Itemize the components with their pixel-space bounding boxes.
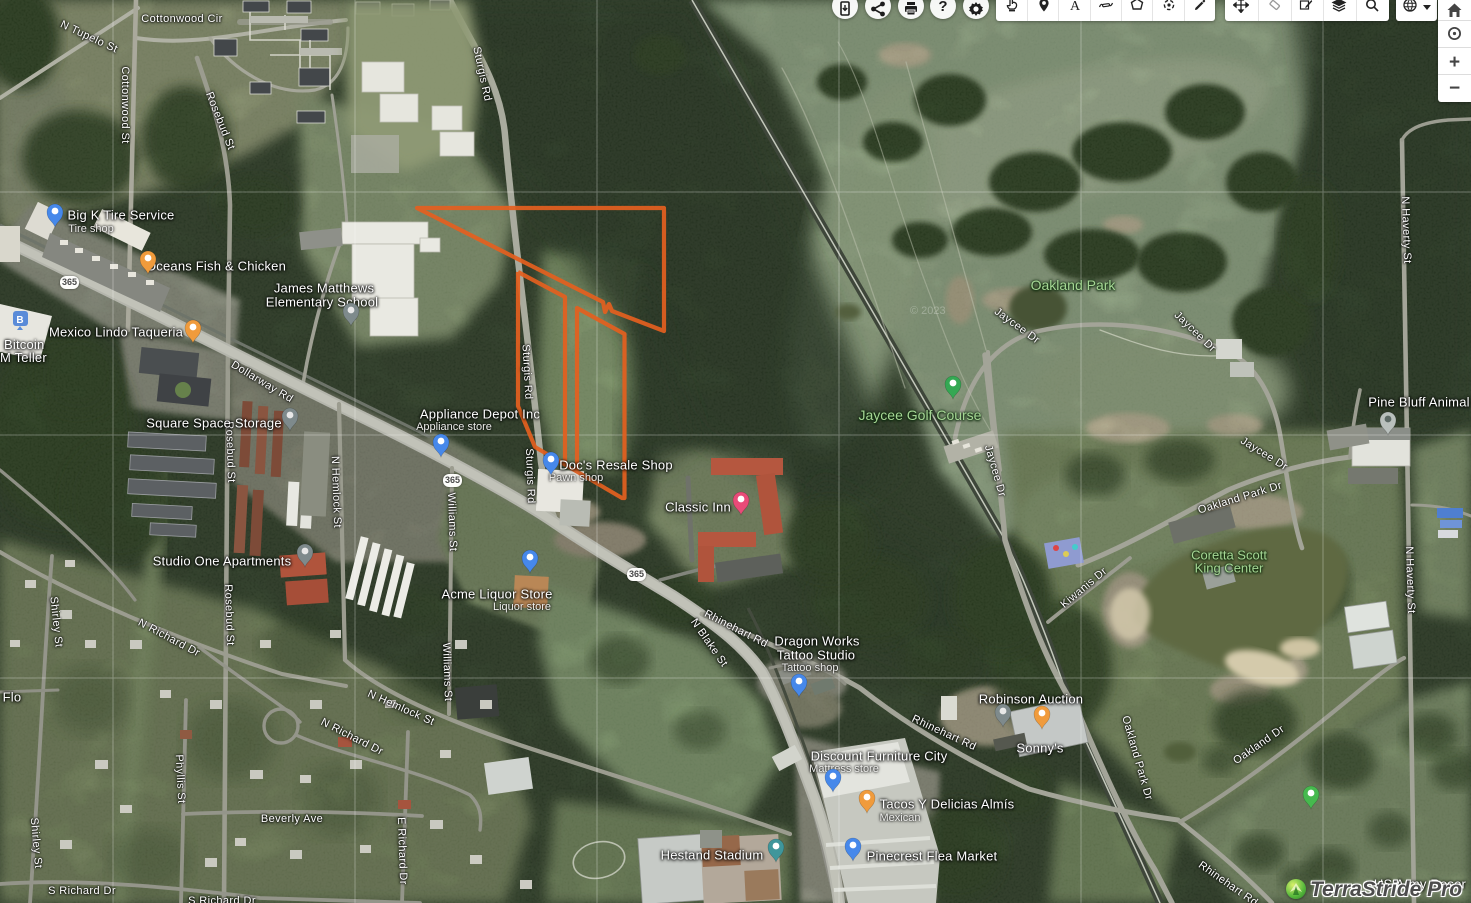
svg-text:B: B bbox=[16, 315, 23, 326]
svg-text:A: A bbox=[1070, 0, 1081, 13]
